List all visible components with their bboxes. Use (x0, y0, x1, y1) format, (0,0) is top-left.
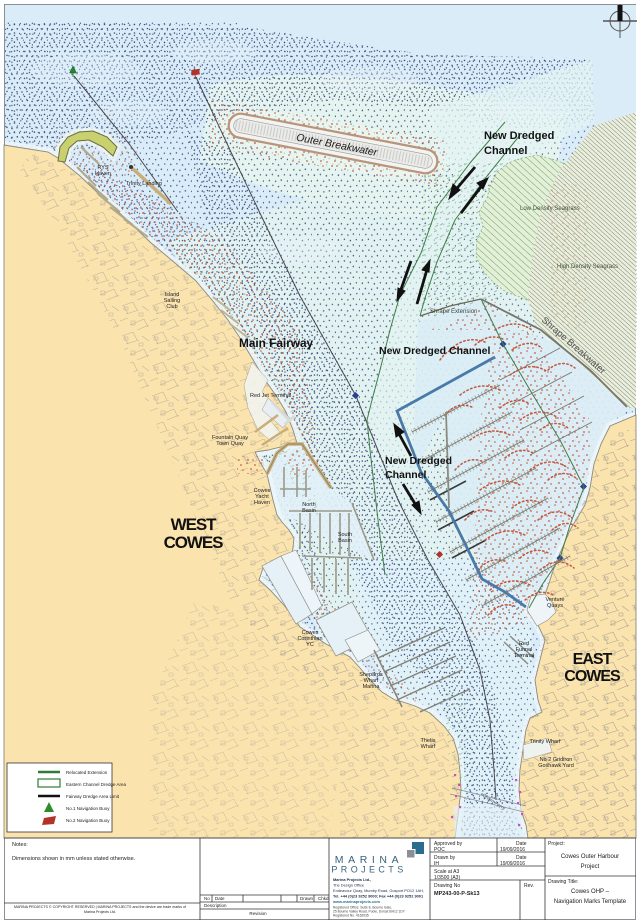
svg-text:Basin: Basin (338, 538, 352, 544)
svg-text:Relocated Extension: Relocated Extension (66, 770, 108, 775)
svg-text:No.1 Navigation Buoy: No.1 Navigation Buoy (66, 806, 110, 811)
svg-text:Description: Description (204, 903, 227, 908)
svg-text:Project:: Project: (548, 841, 565, 847)
svg-text:New Dredged: New Dredged (385, 455, 452, 467)
svg-text:Marina Projects Ltd.: Marina Projects Ltd. (84, 910, 116, 914)
svg-text:Marina Projects Ltd.,: Marina Projects Ltd., (333, 877, 371, 882)
svg-text:Notes:: Notes: (12, 842, 28, 848)
svg-text:MARINA PROJECTS © COPYRIGHT RE: MARINA PROJECTS © COPYRIGHT RESERVED | M… (14, 905, 186, 909)
svg-text:19/09/2016: 19/09/2016 (500, 847, 525, 853)
svg-text:Cowes Outer Harbour: Cowes Outer Harbour (561, 854, 619, 860)
svg-text:Town Quay: Town Quay (216, 441, 244, 447)
svg-text:Revision: Revision (249, 911, 267, 916)
svg-text:Registered No. 4162635: Registered No. 4162635 (333, 914, 369, 918)
svg-text:Quays: Quays (547, 603, 563, 609)
svg-text:POC: POC (434, 847, 445, 853)
svg-text:Basin: Basin (302, 508, 316, 514)
svg-text:YC: YC (306, 642, 314, 648)
svg-text:EAST: EAST (573, 651, 613, 668)
svg-text:High Density Seagrass: High Density Seagrass (557, 264, 618, 270)
svg-text:Channel: Channel (484, 145, 527, 157)
svg-text:Drawn: Drawn (300, 896, 314, 901)
svg-text:Shrape Extension: Shrape Extension (430, 309, 477, 315)
svg-text:New Dredged: New Dredged (484, 130, 554, 142)
svg-text:1/3500 (A3): 1/3500 (A3) (434, 875, 460, 881)
svg-text:The Design Office: The Design Office (333, 883, 364, 888)
svg-text:Dimensions shown in mm unless: Dimensions shown in mm unless stated oth… (12, 856, 136, 862)
svg-text:No: No (204, 896, 210, 901)
svg-text:Goshawk Yard: Goshawk Yard (538, 763, 574, 769)
svg-text:Rev.: Rev. (524, 883, 534, 889)
svg-text:Endeavour Quay, Mumby Road, Go: Endeavour Quay, Mumby Road, Gosport PO12… (333, 888, 424, 893)
svg-text:COWES: COWES (164, 533, 223, 552)
svg-text:New Dredged Channel: New Dredged Channel (379, 345, 491, 357)
svg-text:Channel: Channel (385, 469, 427, 481)
svg-text:COWES: COWES (564, 668, 621, 685)
svg-text:Trinity Wharf: Trinity Wharf (530, 739, 561, 745)
svg-text:Marina: Marina (363, 684, 381, 690)
svg-text:Haven: Haven (95, 171, 111, 177)
svg-text:Drawing No: Drawing No (434, 883, 460, 889)
svg-text:Terminal: Terminal (514, 653, 535, 659)
svg-text:19/09/2016: 19/09/2016 (500, 861, 525, 867)
svg-text:PROJECTS: PROJECTS (331, 865, 406, 875)
svg-text:Haven: Haven (254, 500, 270, 506)
svg-text:Tel. +44 (0)23 9252 9000; Fax: Tel. +44 (0)23 9252 9000; Fax +44 (0)23 … (333, 894, 424, 899)
svg-text:MP243-00-P-Sk13: MP243-00-P-Sk13 (434, 891, 480, 897)
svg-text:Drawing Title:: Drawing Title: (548, 879, 578, 885)
svg-text:Eastern Channel Dredge Area: Eastern Channel Dredge Area (66, 782, 127, 787)
svg-text:Date: Date (215, 896, 225, 901)
svg-text:WEST: WEST (171, 515, 217, 534)
svg-text:Cowes OHP –: Cowes OHP – (571, 889, 610, 895)
svg-text:Low Density Seagrass: Low Density Seagrass (520, 206, 580, 212)
svg-text:IH: IH (434, 861, 439, 867)
svg-text:Project: Project (581, 864, 600, 870)
svg-text:Main Fairway: Main Fairway (239, 336, 314, 350)
svg-text:www.marinaprojects.com: www.marinaprojects.com (332, 899, 381, 904)
svg-text:Wharf: Wharf (421, 744, 436, 750)
svg-text:Red Jet Terminal: Red Jet Terminal (250, 393, 291, 399)
svg-text:Chkd: Chkd (318, 896, 329, 901)
svg-text:Trinity Landing: Trinity Landing (126, 181, 162, 187)
svg-text:Navigation Marks Template: Navigation Marks Template (554, 899, 627, 905)
svg-text:Fairway Dredge Area Limit: Fairway Dredge Area Limit (66, 794, 120, 799)
svg-text:Club: Club (166, 304, 177, 310)
svg-text:No.2 Navigation Buoy: No.2 Navigation Buoy (66, 818, 110, 823)
